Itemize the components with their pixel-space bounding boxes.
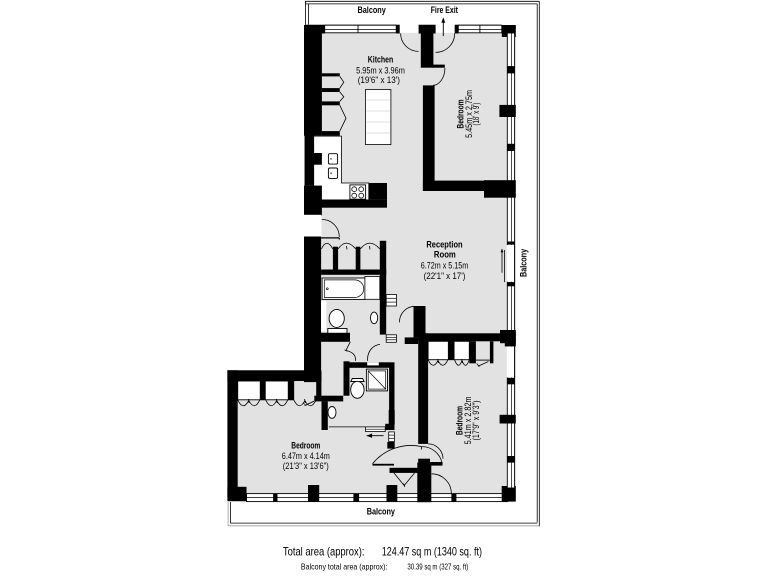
svg-text:Balcony total area (approx):: Balcony total area (approx):	[301, 563, 388, 572]
svg-text:Balcony: Balcony	[518, 248, 529, 277]
svg-text:(17'9" x 9'3"): (17'9" x 9'3")	[471, 400, 481, 440]
svg-text:(22'1" x 17'): (22'1" x 17')	[424, 271, 466, 281]
svg-text:(19'6" x 13'): (19'6" x 13')	[358, 75, 400, 85]
svg-text:Kitchen: Kitchen	[368, 55, 393, 65]
svg-text:Balcony: Balcony	[367, 507, 396, 518]
svg-text:Total area (approx):: Total area (approx):	[283, 545, 365, 559]
svg-text:124.47 sq m (1340 sq. ft): 124.47 sq m (1340 sq. ft)	[382, 545, 482, 559]
svg-text:6.47m x 4.14m: 6.47m x 4.14m	[282, 451, 330, 461]
svg-text:(21'3" x 13'6"): (21'3" x 13'6")	[283, 461, 329, 471]
svg-text:Balcony: Balcony	[358, 5, 387, 16]
svg-text:(18' x 9'): (18' x 9')	[471, 103, 481, 126]
svg-text:Fire Exit: Fire Exit	[431, 5, 459, 16]
svg-text:6.72m x 5.15m: 6.72m x 5.15m	[421, 261, 468, 271]
svg-text:Reception: Reception	[426, 240, 462, 250]
svg-text:30.39 sq m (327 sq. ft): 30.39 sq m (327 sq. ft)	[407, 563, 468, 572]
svg-text:Bedroom: Bedroom	[291, 441, 320, 451]
svg-text:Room: Room	[434, 249, 456, 259]
